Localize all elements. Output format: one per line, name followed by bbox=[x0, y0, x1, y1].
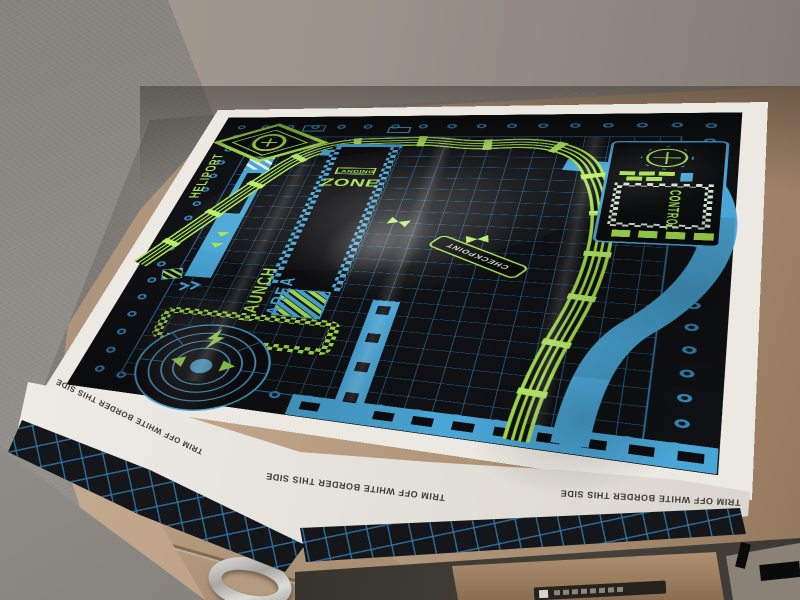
drawer-handle-center bbox=[219, 565, 281, 600]
landing-label: LANDING bbox=[335, 169, 376, 175]
box-label bbox=[534, 581, 666, 600]
zone-label: ZONE bbox=[319, 176, 383, 189]
control-panel: CONTROL bbox=[594, 142, 728, 247]
striped-square-marker bbox=[162, 268, 183, 279]
scene: HELIPORT LANDING ZONE LAUNCH AREA bbox=[0, 0, 800, 600]
